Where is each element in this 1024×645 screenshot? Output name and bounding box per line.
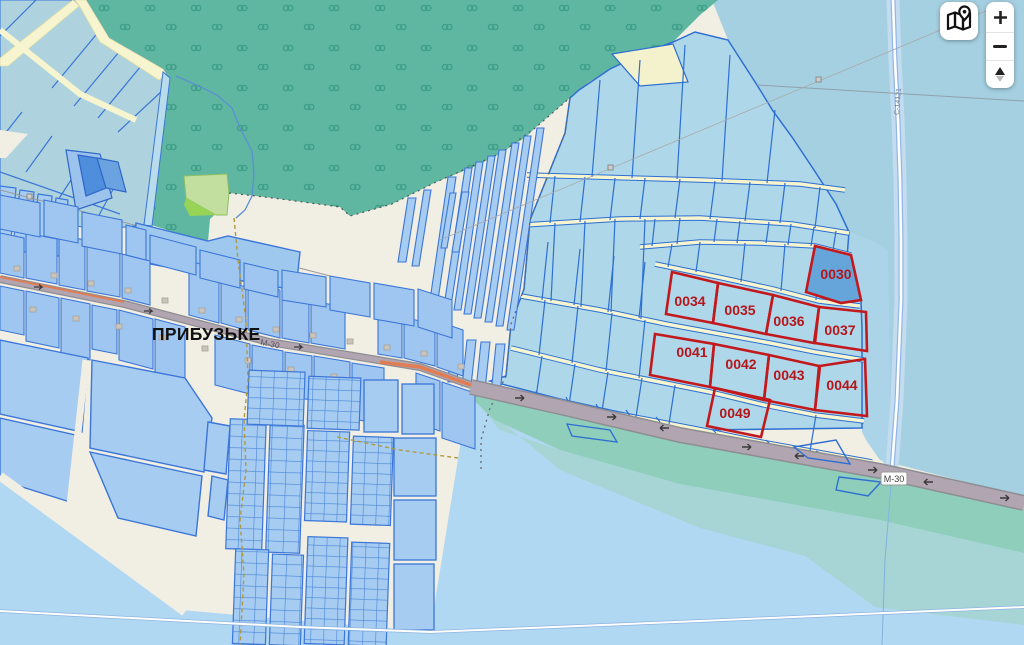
svg-text:0042: 0042 — [725, 356, 756, 372]
svg-text:0036: 0036 — [773, 313, 804, 329]
svg-text:0037: 0037 — [824, 322, 855, 338]
svg-text:0041: 0041 — [676, 344, 707, 360]
svg-text:0044: 0044 — [826, 377, 857, 393]
svg-text:0043: 0043 — [773, 367, 804, 383]
svg-text:0049: 0049 — [719, 405, 750, 421]
svg-text:0030: 0030 — [820, 266, 851, 282]
svg-text:0034: 0034 — [674, 293, 705, 309]
svg-text:0035: 0035 — [724, 302, 755, 318]
svg-text:ПРИБУЗЬКЕ: ПРИБУЗЬКЕ — [152, 324, 260, 344]
svg-text:М-30: М-30 — [884, 474, 905, 484]
